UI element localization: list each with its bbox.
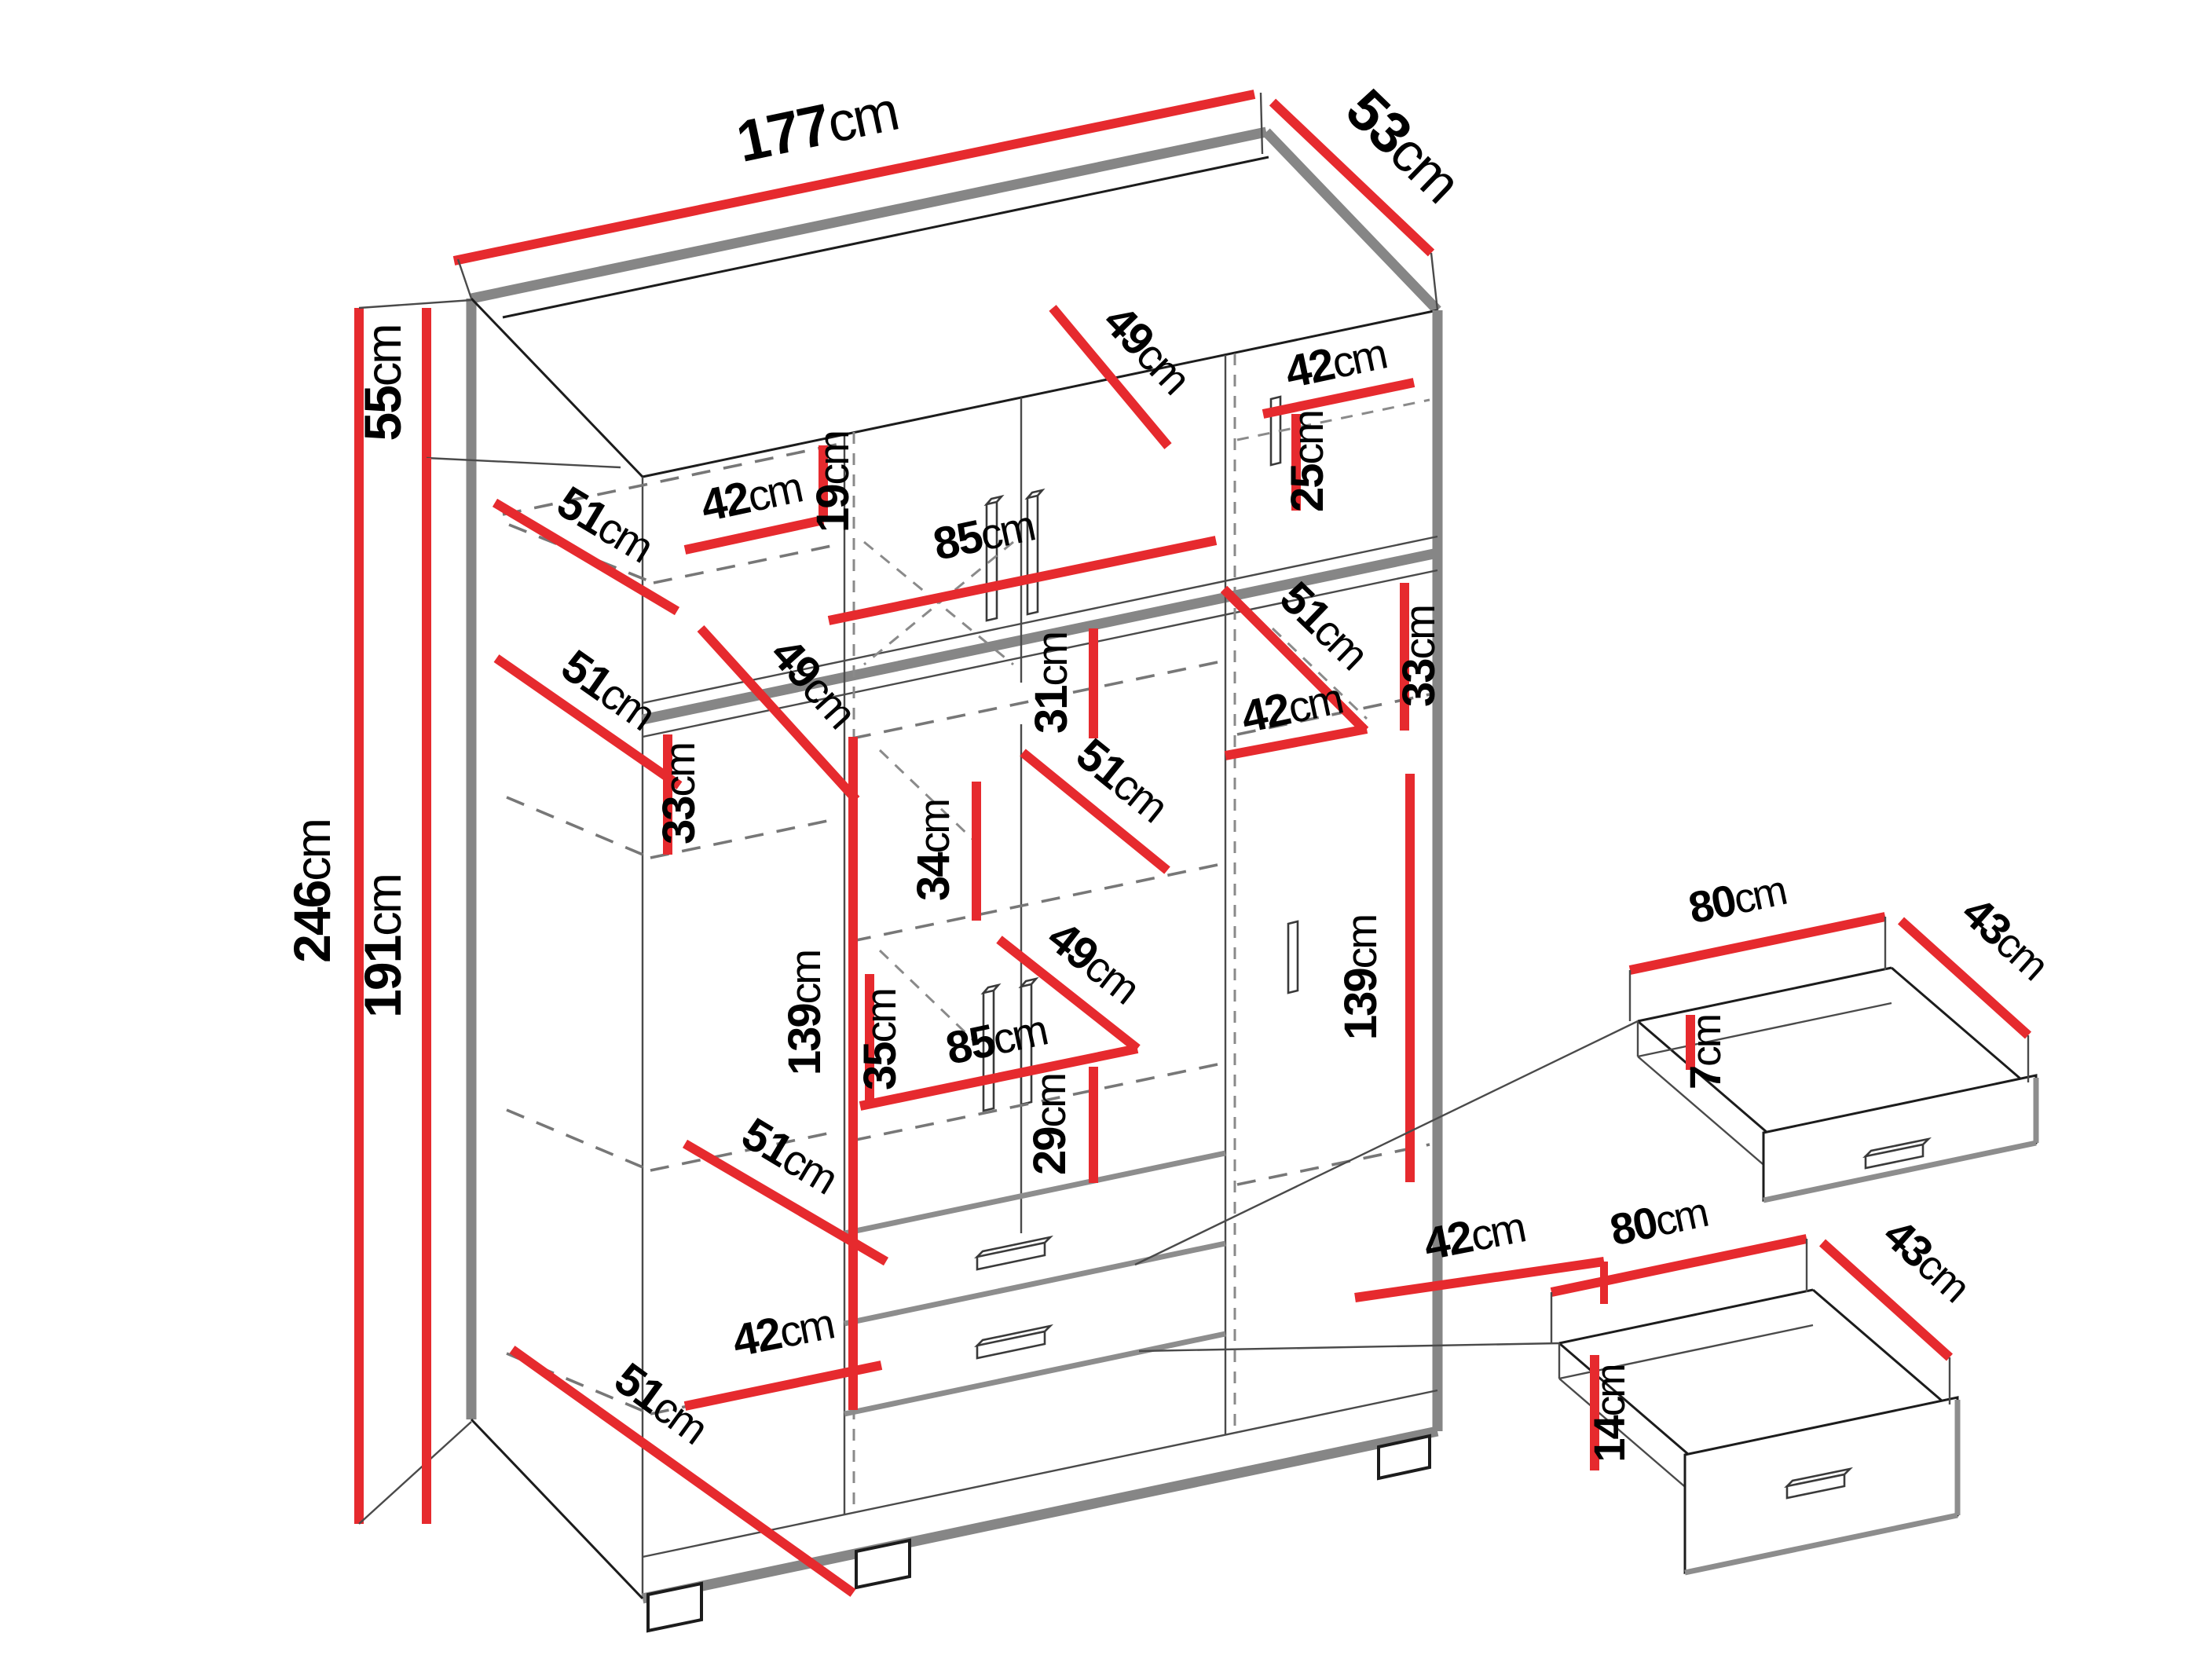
dim-bottom-section-height: 191cm	[353, 458, 427, 1524]
dim-drawer1-height: 7cm	[1680, 1015, 1730, 1090]
left-side-face	[471, 298, 643, 1599]
dim-drawer2-height: 14cm	[1584, 1355, 1634, 1470]
dim-label: 25cm	[1282, 412, 1333, 512]
door-handle	[1288, 921, 1298, 993]
dim-label: 35cm	[855, 990, 906, 1090]
wardrobe-dimension-diagram: 177cm 53cm 246cm 55cm 191cm 42cm	[0, 0, 2212, 1659]
dim-label: 34cm	[908, 800, 959, 901]
dim-label: 14cm	[1584, 1365, 1634, 1462]
dim-label: 80cm	[1684, 864, 1789, 932]
dim-label: 43cm	[1874, 1209, 1979, 1310]
dim-35-center: 35cm	[855, 974, 906, 1106]
dim-label: 177cm	[731, 77, 903, 174]
dim-33-left: 33cm	[654, 734, 705, 855]
dim-label: 31cm	[1026, 633, 1077, 734]
dim-top-box-19: 19cm	[808, 432, 859, 533]
dim-label: 246cm	[283, 820, 341, 963]
dim-label: 53cm	[1334, 76, 1473, 214]
dim-label: 139cm	[1335, 916, 1386, 1040]
dim-top-right-25: 25cm	[1282, 412, 1333, 512]
dim-label: 43cm	[1953, 887, 2058, 988]
drawer-detail-top: 80cm 43cm 7cm	[1630, 864, 2058, 1200]
drawer-detail-bottom: 80cm 43cm 14cm	[1551, 1186, 1979, 1573]
dim-label: 80cm	[1606, 1186, 1711, 1254]
dim-label: 29cm	[1024, 1075, 1075, 1175]
dim-label: 7cm	[1680, 1016, 1730, 1090]
dim-label: 33cm	[654, 744, 705, 844]
dim-label: 33cm	[1393, 606, 1445, 707]
dim-label: 55cm	[353, 326, 412, 441]
dim-label: 191cm	[353, 875, 412, 1018]
dim-label: 19cm	[808, 432, 859, 533]
dim-label: 139cm	[779, 951, 830, 1075]
